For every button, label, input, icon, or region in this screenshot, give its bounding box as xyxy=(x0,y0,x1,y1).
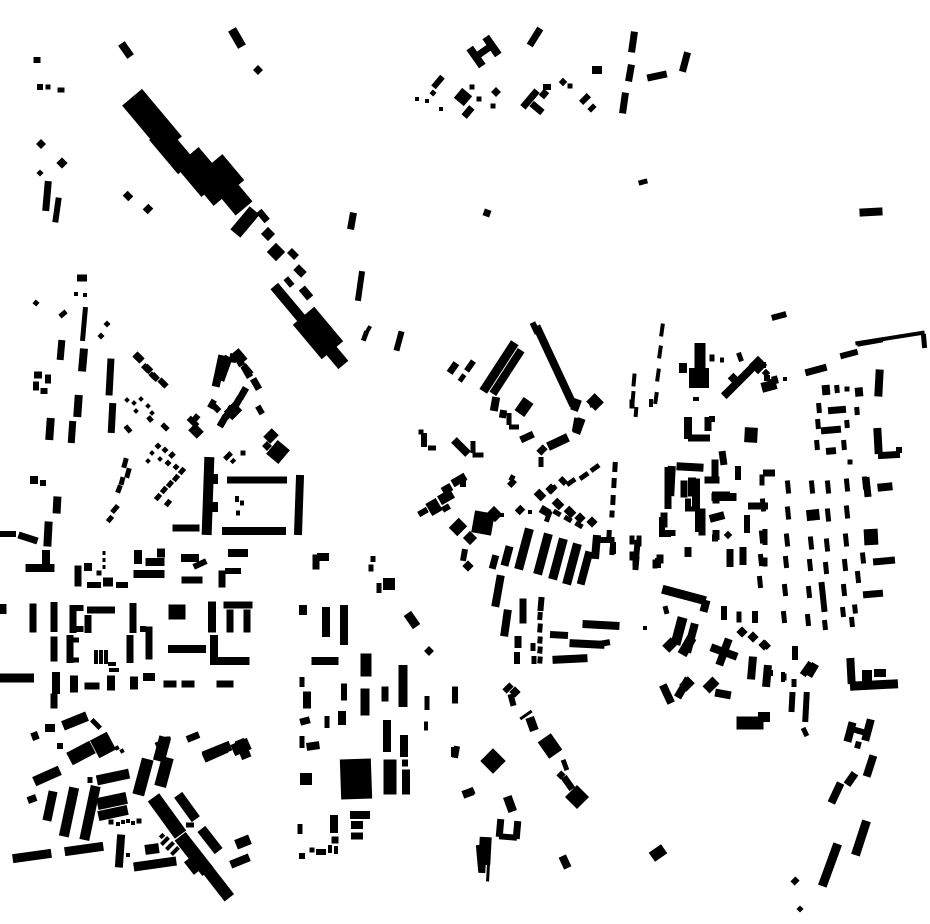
building xyxy=(550,631,568,639)
building xyxy=(99,650,103,664)
building xyxy=(661,513,668,528)
building xyxy=(84,563,92,571)
building xyxy=(814,440,820,450)
building xyxy=(400,735,408,757)
building xyxy=(121,820,125,824)
building xyxy=(852,604,858,613)
building xyxy=(808,536,814,549)
building xyxy=(514,397,533,417)
building xyxy=(663,605,670,614)
building xyxy=(824,538,830,551)
building xyxy=(202,743,229,762)
building xyxy=(85,615,92,633)
building xyxy=(182,577,203,584)
building xyxy=(471,441,476,453)
building xyxy=(267,243,285,261)
building xyxy=(441,503,451,512)
building xyxy=(565,477,576,487)
building xyxy=(299,285,313,300)
building xyxy=(806,586,812,598)
building xyxy=(347,212,357,230)
building xyxy=(737,612,742,623)
building xyxy=(503,795,517,813)
building xyxy=(513,821,522,840)
building xyxy=(87,607,115,614)
building xyxy=(212,474,218,484)
building xyxy=(161,446,168,453)
building xyxy=(507,413,512,425)
building xyxy=(212,502,218,512)
building xyxy=(42,790,57,821)
building xyxy=(103,551,106,555)
building xyxy=(56,157,67,168)
building xyxy=(792,679,797,687)
building xyxy=(131,821,135,825)
building xyxy=(404,611,421,629)
building xyxy=(473,453,484,458)
building xyxy=(36,139,46,149)
building xyxy=(332,837,339,844)
building xyxy=(537,656,543,663)
building xyxy=(857,337,883,346)
building xyxy=(36,169,43,176)
building xyxy=(425,696,430,710)
building xyxy=(818,842,842,887)
building xyxy=(757,576,763,588)
building xyxy=(83,293,87,297)
building xyxy=(73,638,79,643)
building xyxy=(77,626,84,632)
building xyxy=(43,521,52,546)
building xyxy=(244,610,251,633)
building xyxy=(299,605,307,615)
building xyxy=(173,525,200,532)
building xyxy=(132,758,153,797)
building xyxy=(689,368,709,388)
building xyxy=(30,731,39,741)
building xyxy=(224,602,253,609)
building xyxy=(350,811,370,819)
building xyxy=(736,626,747,637)
building xyxy=(73,658,79,663)
building xyxy=(312,657,339,665)
building xyxy=(864,529,879,546)
building xyxy=(569,639,604,649)
building xyxy=(130,603,137,633)
building xyxy=(17,532,38,545)
building xyxy=(197,826,222,854)
building xyxy=(300,677,305,687)
building xyxy=(208,602,216,633)
building xyxy=(178,467,186,476)
building xyxy=(825,508,831,521)
building xyxy=(657,345,663,358)
building xyxy=(537,612,543,620)
building xyxy=(681,481,688,498)
building xyxy=(325,716,330,728)
building xyxy=(106,515,114,524)
building xyxy=(115,834,125,867)
building xyxy=(568,84,573,89)
building xyxy=(533,324,577,407)
building xyxy=(188,423,204,439)
building xyxy=(458,373,467,382)
building xyxy=(818,582,827,612)
building xyxy=(841,584,847,596)
building xyxy=(611,478,617,488)
building xyxy=(828,781,845,804)
building xyxy=(399,665,408,707)
building xyxy=(361,654,372,677)
building xyxy=(424,722,428,731)
building xyxy=(306,741,320,751)
building xyxy=(709,511,726,523)
building xyxy=(66,741,96,766)
building xyxy=(124,468,131,479)
building xyxy=(425,99,429,103)
building xyxy=(477,97,482,102)
building xyxy=(873,428,882,454)
building xyxy=(154,493,162,502)
building xyxy=(592,66,602,74)
building xyxy=(126,853,130,857)
building xyxy=(821,426,842,435)
building xyxy=(874,369,883,396)
building xyxy=(785,506,791,519)
building xyxy=(383,720,391,752)
building xyxy=(822,620,828,630)
building xyxy=(781,672,785,682)
building xyxy=(415,97,419,101)
building xyxy=(70,676,78,693)
building xyxy=(298,824,303,834)
building xyxy=(486,864,490,881)
building xyxy=(255,405,265,416)
building xyxy=(116,822,120,826)
building xyxy=(693,397,699,401)
building xyxy=(384,760,397,795)
building xyxy=(537,646,543,653)
building xyxy=(758,554,764,566)
building xyxy=(78,348,88,372)
building xyxy=(451,437,471,457)
building xyxy=(539,89,550,100)
building xyxy=(46,85,51,90)
building xyxy=(646,70,667,81)
building xyxy=(842,559,848,571)
building xyxy=(228,27,246,49)
building xyxy=(341,684,347,701)
building xyxy=(478,837,491,866)
building xyxy=(67,635,74,663)
building xyxy=(59,787,79,838)
building xyxy=(133,351,144,362)
building-footprint-canvas xyxy=(0,0,930,924)
building xyxy=(785,480,791,493)
building xyxy=(589,463,600,473)
building xyxy=(103,578,113,587)
building xyxy=(75,566,82,587)
building xyxy=(537,636,543,643)
building xyxy=(181,554,199,562)
building xyxy=(637,536,642,547)
building xyxy=(685,499,691,512)
building xyxy=(804,364,827,376)
building xyxy=(424,646,434,656)
building xyxy=(428,446,436,451)
building xyxy=(149,450,155,456)
building xyxy=(123,191,134,202)
building xyxy=(721,606,727,620)
building xyxy=(709,416,715,422)
building xyxy=(676,462,703,471)
building xyxy=(383,578,395,590)
building xyxy=(582,620,619,630)
building xyxy=(760,362,766,368)
building xyxy=(45,724,55,732)
building xyxy=(103,558,106,562)
building xyxy=(828,406,847,415)
building xyxy=(809,480,815,493)
building xyxy=(110,504,120,514)
building xyxy=(402,760,408,767)
building xyxy=(41,388,48,394)
building xyxy=(515,636,522,648)
building xyxy=(377,583,382,593)
building xyxy=(159,833,165,839)
building xyxy=(299,716,310,725)
building xyxy=(235,496,239,502)
building xyxy=(661,530,676,536)
building xyxy=(74,292,78,296)
building xyxy=(850,679,898,690)
building xyxy=(630,391,635,403)
building xyxy=(57,743,63,749)
building xyxy=(699,509,706,536)
building xyxy=(727,549,734,567)
building xyxy=(217,657,250,665)
building xyxy=(515,505,526,516)
building xyxy=(499,409,507,418)
building xyxy=(514,652,520,664)
building xyxy=(863,590,884,599)
building xyxy=(186,823,194,828)
building xyxy=(714,689,731,700)
building xyxy=(261,227,275,241)
building xyxy=(166,480,174,489)
building xyxy=(330,815,338,833)
building xyxy=(520,599,527,624)
building xyxy=(579,93,591,105)
building xyxy=(33,382,39,391)
building xyxy=(299,853,305,859)
building xyxy=(491,575,504,608)
building xyxy=(822,385,831,396)
building xyxy=(64,842,104,856)
building xyxy=(782,584,788,596)
building xyxy=(825,480,831,493)
building xyxy=(769,670,773,676)
building xyxy=(300,773,312,785)
building xyxy=(685,547,692,557)
building xyxy=(80,307,88,341)
building xyxy=(705,477,720,484)
building xyxy=(107,676,115,691)
building xyxy=(157,456,163,462)
building xyxy=(52,197,61,223)
building xyxy=(784,533,790,546)
building xyxy=(126,819,130,823)
building xyxy=(462,560,473,571)
building xyxy=(228,549,248,557)
building xyxy=(104,650,108,664)
building xyxy=(361,689,370,716)
building xyxy=(558,476,568,486)
building xyxy=(334,846,338,854)
building xyxy=(108,662,116,666)
building xyxy=(845,387,850,392)
building xyxy=(109,820,114,825)
building xyxy=(491,87,501,97)
building xyxy=(0,674,34,683)
building xyxy=(172,474,180,483)
building xyxy=(322,607,330,637)
building xyxy=(30,476,38,484)
building xyxy=(419,430,424,435)
building xyxy=(133,857,177,872)
building xyxy=(478,863,486,873)
building xyxy=(45,375,51,384)
building xyxy=(382,687,389,702)
building xyxy=(253,65,263,75)
building xyxy=(862,477,871,498)
building xyxy=(394,331,405,352)
building xyxy=(316,849,326,855)
building xyxy=(229,854,251,869)
building xyxy=(758,712,770,722)
building xyxy=(51,602,58,632)
building xyxy=(287,248,299,260)
building xyxy=(236,511,240,516)
building xyxy=(45,418,55,441)
building xyxy=(12,849,52,863)
building xyxy=(143,673,155,681)
building xyxy=(73,395,83,418)
building xyxy=(806,509,820,521)
building xyxy=(371,556,376,562)
building xyxy=(528,510,532,514)
building xyxy=(431,75,445,90)
building xyxy=(826,447,837,455)
building xyxy=(853,727,864,735)
building xyxy=(527,27,544,48)
building xyxy=(552,509,561,517)
building xyxy=(317,553,329,561)
building xyxy=(552,654,587,664)
building xyxy=(483,209,492,218)
building xyxy=(217,681,234,688)
building xyxy=(138,396,144,402)
building xyxy=(514,528,534,571)
building xyxy=(219,571,226,588)
building xyxy=(119,748,124,753)
building xyxy=(103,320,110,327)
building xyxy=(170,846,180,856)
building xyxy=(283,276,294,288)
building xyxy=(87,582,101,588)
building xyxy=(266,440,290,464)
building xyxy=(862,670,872,682)
building xyxy=(108,403,117,433)
building xyxy=(202,457,215,535)
building xyxy=(712,460,719,477)
building xyxy=(655,368,661,381)
building xyxy=(300,736,305,748)
building xyxy=(439,107,443,111)
building xyxy=(454,88,472,106)
building xyxy=(402,770,410,795)
building xyxy=(340,605,348,645)
building xyxy=(712,493,737,501)
building xyxy=(638,178,648,185)
building xyxy=(783,556,789,568)
building xyxy=(88,777,93,783)
building xyxy=(223,451,233,461)
building xyxy=(655,558,661,568)
building xyxy=(137,819,142,824)
building xyxy=(665,467,672,509)
building xyxy=(447,361,460,375)
building xyxy=(844,478,850,491)
building xyxy=(802,692,810,722)
building xyxy=(848,460,853,465)
building xyxy=(587,103,596,112)
building xyxy=(747,656,757,680)
building xyxy=(710,355,715,362)
building xyxy=(134,550,142,564)
building xyxy=(452,687,458,704)
building xyxy=(630,536,635,545)
building xyxy=(140,626,146,632)
building xyxy=(851,819,871,856)
building xyxy=(840,349,859,359)
building xyxy=(534,489,547,502)
building xyxy=(790,876,799,885)
building xyxy=(719,451,728,466)
building xyxy=(0,604,7,614)
building xyxy=(51,694,58,709)
building xyxy=(834,385,840,393)
building xyxy=(490,396,500,411)
building xyxy=(77,605,84,611)
building xyxy=(97,332,104,339)
building xyxy=(874,669,886,677)
building xyxy=(475,44,492,59)
building xyxy=(328,845,332,853)
building xyxy=(109,668,119,672)
building xyxy=(610,542,616,554)
building xyxy=(351,833,363,840)
building xyxy=(863,754,877,777)
building xyxy=(578,471,589,481)
building xyxy=(103,565,106,569)
building xyxy=(154,442,161,449)
building xyxy=(115,484,122,493)
building xyxy=(559,78,567,86)
building xyxy=(781,611,787,623)
building xyxy=(119,476,126,485)
building xyxy=(463,531,477,545)
